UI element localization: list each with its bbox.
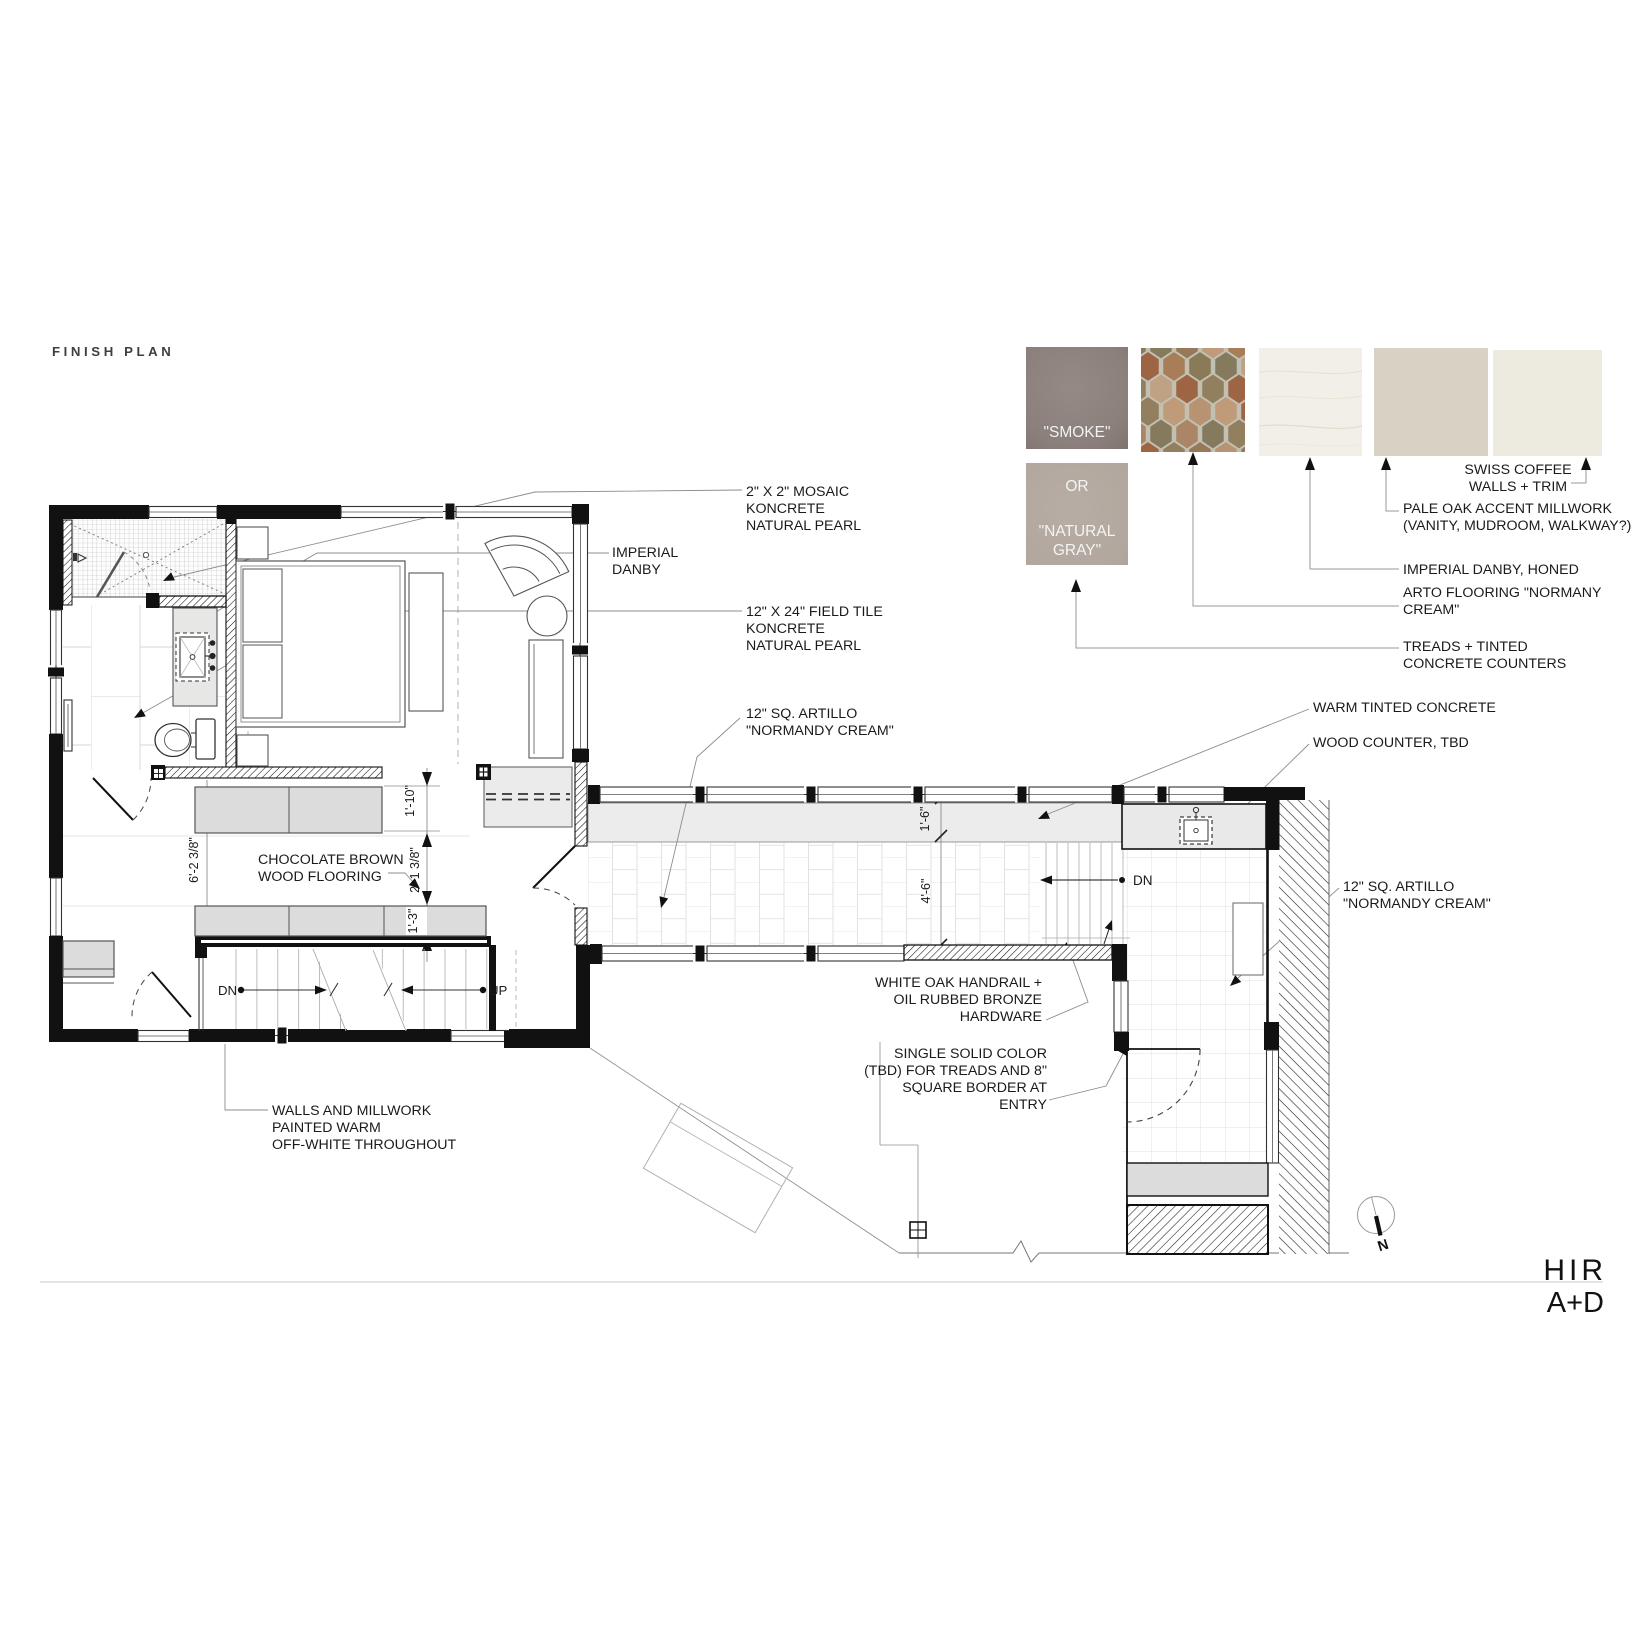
svg-text:OR: OR bbox=[1065, 478, 1088, 495]
svg-text:ARTO FLOORING "NORMANY: ARTO FLOORING "NORMANY bbox=[1403, 585, 1602, 601]
svg-text:HIR: HIR bbox=[1543, 1254, 1607, 1287]
svg-text:12" SQ. ARTILLO: 12" SQ. ARTILLO bbox=[1343, 879, 1454, 895]
svg-text:IMPERIAL: IMPERIAL bbox=[612, 545, 678, 561]
svg-text:SWISS COFFEE: SWISS COFFEE bbox=[1464, 462, 1571, 478]
svg-text:WHITE OAK HANDRAIL +: WHITE OAK HANDRAIL + bbox=[875, 975, 1042, 991]
svg-text:GRAY": GRAY" bbox=[1053, 542, 1101, 559]
svg-text:ENTRY: ENTRY bbox=[999, 1097, 1047, 1113]
svg-text:NATURAL PEARL: NATURAL PEARL bbox=[746, 518, 861, 534]
svg-text:A+D: A+D bbox=[1547, 1287, 1604, 1319]
svg-text:CONCRETE COUNTERS: CONCRETE COUNTERS bbox=[1403, 656, 1566, 672]
svg-text:WALLS + TRIM: WALLS + TRIM bbox=[1469, 479, 1567, 495]
svg-text:12" SQ. ARTILLO: 12" SQ. ARTILLO bbox=[746, 706, 857, 722]
svg-text:CREAM": CREAM" bbox=[1403, 602, 1459, 618]
svg-text:WALLS AND MILLWORK: WALLS AND MILLWORK bbox=[272, 1103, 432, 1119]
svg-text:(VANITY, MUDROOM, WALKWAY?): (VANITY, MUDROOM, WALKWAY?) bbox=[1403, 518, 1631, 534]
svg-text:FINISH PLAN: FINISH PLAN bbox=[52, 344, 174, 359]
svg-text:WARM TINTED CONCRETE: WARM TINTED CONCRETE bbox=[1313, 700, 1496, 716]
svg-text:2" X 2" MOSAIC: 2" X 2" MOSAIC bbox=[746, 484, 849, 500]
svg-text:1'-6": 1'-6" bbox=[918, 807, 932, 832]
svg-text:DANBY: DANBY bbox=[612, 562, 661, 578]
svg-text:TREADS + TINTED: TREADS + TINTED bbox=[1403, 639, 1528, 655]
svg-text:2'-1 3/8": 2'-1 3/8" bbox=[408, 847, 422, 893]
svg-text:NATURAL PEARL: NATURAL PEARL bbox=[746, 638, 861, 654]
svg-text:PALE OAK ACCENT MILLWORK: PALE OAK ACCENT MILLWORK bbox=[1403, 501, 1612, 517]
svg-text:1'-3": 1'-3" bbox=[406, 909, 420, 934]
svg-text:IMPERIAL DANBY, HONED: IMPERIAL DANBY, HONED bbox=[1403, 562, 1579, 578]
svg-text:"SMOKE": "SMOKE" bbox=[1044, 424, 1111, 441]
svg-text:OIL RUBBED BRONZE: OIL RUBBED BRONZE bbox=[894, 992, 1042, 1008]
svg-text:HARDWARE: HARDWARE bbox=[960, 1009, 1042, 1025]
svg-text:CHOCOLATE BROWN: CHOCOLATE BROWN bbox=[258, 852, 404, 868]
svg-text:"NORMANDY CREAM": "NORMANDY CREAM" bbox=[1343, 896, 1491, 912]
svg-text:SQUARE BORDER AT: SQUARE BORDER AT bbox=[902, 1080, 1047, 1096]
svg-text:SINGLE SOLID COLOR: SINGLE SOLID COLOR bbox=[894, 1046, 1047, 1062]
svg-text:(TBD) FOR TREADS AND 8": (TBD) FOR TREADS AND 8" bbox=[864, 1063, 1047, 1079]
svg-text:KONCRETE: KONCRETE bbox=[746, 501, 825, 517]
svg-text:1'-10": 1'-10" bbox=[403, 785, 417, 817]
svg-text:"NORMANDY CREAM": "NORMANDY CREAM" bbox=[746, 723, 894, 739]
svg-text:UP: UP bbox=[489, 983, 508, 998]
svg-text:"NATURAL: "NATURAL bbox=[1039, 523, 1116, 540]
svg-text:DN: DN bbox=[1133, 873, 1153, 888]
svg-text:6'-2 3/8": 6'-2 3/8" bbox=[187, 837, 201, 883]
svg-text:PAINTED WARM: PAINTED WARM bbox=[272, 1120, 381, 1136]
svg-text:KONCRETE: KONCRETE bbox=[746, 621, 825, 637]
svg-text:DN: DN bbox=[218, 983, 237, 998]
svg-text:WOOD COUNTER, TBD: WOOD COUNTER, TBD bbox=[1313, 735, 1469, 751]
svg-text:12" X 24" FIELD TILE: 12" X 24" FIELD TILE bbox=[746, 604, 883, 620]
svg-text:4'-6": 4'-6" bbox=[919, 879, 933, 904]
svg-text:OFF-WHITE THROUGHOUT: OFF-WHITE THROUGHOUT bbox=[272, 1137, 456, 1153]
svg-text:WOOD FLOORING: WOOD FLOORING bbox=[258, 869, 382, 885]
